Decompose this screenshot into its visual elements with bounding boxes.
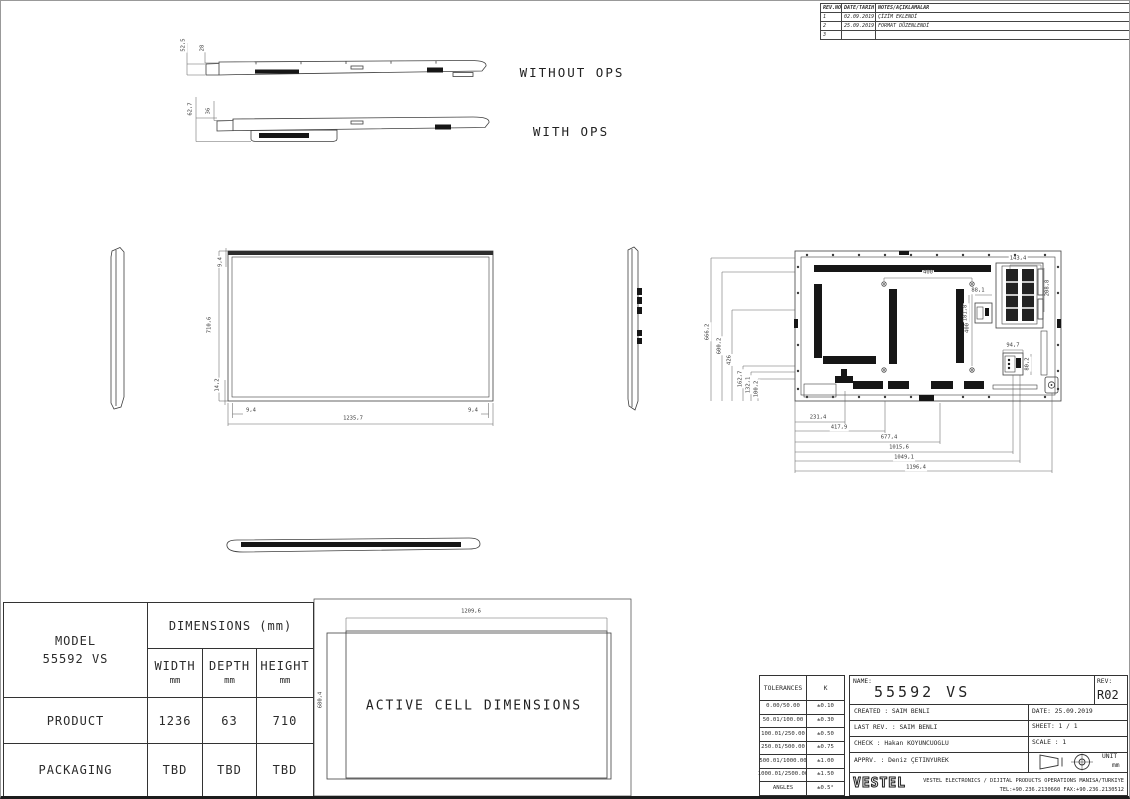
tol-range: 1000.01/2500.00: [760, 769, 806, 782]
col-height: HEIGHT mm: [257, 649, 313, 697]
dim-back-bottom-4: 1049,1: [893, 455, 915, 461]
sheet-value: SHEET: 1 / 1: [1032, 724, 1078, 730]
dim-front-bottom-bezel: 14,2: [215, 377, 221, 392]
dim-front-left-bezel: 9,4: [245, 408, 257, 414]
tol-range: 0.00/50.00: [760, 701, 806, 714]
rev-row-no: 2: [821, 22, 841, 30]
rev-value: R02: [1097, 688, 1119, 702]
col-depth-unit: mm: [224, 675, 235, 689]
date-value: DATE: 25.09.2019: [1032, 709, 1093, 715]
scale-value: SCALE : 1: [1032, 740, 1066, 746]
col-width: WIDTH mm: [148, 649, 202, 697]
active-cell-drawing: [314, 599, 631, 796]
rev-header-no: REV.NO: [821, 4, 841, 12]
dim-back-left-1: 600,2: [717, 337, 723, 356]
packaging-width: TBD: [148, 744, 202, 796]
model-value: 55592 VS: [43, 650, 109, 668]
packaging-depth: TBD: [203, 744, 256, 796]
vestel-logo: VESTEL: [853, 776, 906, 791]
created-by: CREATED : SAIM BENLI: [854, 709, 930, 715]
dim-front-top-bezel: 9,4: [218, 256, 224, 268]
tol-value: ±0.5°: [807, 782, 844, 795]
dim-connector-width: 94,7: [1005, 343, 1020, 349]
dim-front-right-bezel: 9,4: [467, 408, 479, 414]
approved-by: APPRV. : Deniz ÇETINYUREK: [854, 758, 949, 764]
drawing-name: 55592 VS: [874, 683, 970, 701]
dim-back-left-2: 426: [727, 354, 733, 366]
dim-connector-height: 80,2: [1025, 356, 1031, 371]
bottom-profile-view: [227, 538, 480, 552]
tol-header-range: TOLERANCES: [760, 676, 806, 700]
speaker-module: [975, 303, 992, 323]
unit-value: mm: [1112, 763, 1120, 769]
tol-value: ±0.30: [807, 715, 844, 728]
profile-view-without-ops: [187, 43, 486, 77]
tol-value: ±1.00: [807, 755, 844, 768]
tol-header-k: K: [807, 676, 844, 700]
dim-ops-width: 143,4: [1009, 256, 1028, 262]
dim-back-left-5: 100,2: [754, 380, 760, 399]
row-product-label: PRODUCT: [4, 698, 147, 743]
tol-range: 250.01/500.00: [760, 742, 806, 755]
dim-back-bottom-2: 677,4: [880, 435, 899, 441]
dim-with-ops-panel: 36: [206, 107, 212, 116]
rev-row-date: 02.09.2019: [842, 13, 875, 21]
rev-row-note: ÇİZİM EKLENDİ: [876, 13, 1130, 21]
packaging-height: TBD: [257, 744, 313, 796]
side-view-right: [628, 247, 642, 410]
side-view-left: [111, 248, 124, 410]
profile-view-with-ops: [196, 97, 489, 142]
company-line: VESTEL ELECTRONICS / DIJITAL PRODUCTS OP…: [923, 778, 1124, 784]
drawing-sheet: 52,5 28 WITHOUT OPS 62,7 36 WITH OPS 710…: [0, 0, 1130, 799]
dim-vesa-horizontal: 400: [922, 270, 934, 276]
ops-slot: [996, 263, 1043, 328]
rev-row-no: 3: [821, 31, 841, 39]
connector-panel: [1003, 353, 1023, 375]
dim-front-width: 1235,7: [342, 416, 364, 422]
projection-symbol-icon: [1036, 753, 1106, 771]
tol-range: 500.01/1000.00: [760, 755, 806, 768]
col-width-label: WIDTH: [154, 657, 195, 675]
dim-active-cell-height: 680,4: [318, 691, 324, 710]
dim-front-height: 710,6: [207, 316, 213, 335]
model-label: MODEL: [55, 632, 96, 650]
model-dimensions-table: MODEL 55592 VS DIMENSIONS (mm) WIDTH mm …: [3, 602, 314, 797]
tol-range: ANGLES: [760, 782, 806, 795]
dim-vesa-vertical: 400: [965, 322, 971, 334]
rev-row-note: FORMAT DÜZENLENDİ: [876, 22, 1130, 30]
dim-back-bottom-1: 417,9: [830, 425, 849, 431]
product-depth: 63: [203, 698, 256, 743]
label-without-ops: WITHOUT OPS: [520, 67, 625, 80]
rev-header-note: NOTES/AÇIKLAMALAR: [876, 4, 1130, 12]
dim-back-bottom-5: 1196,4: [905, 465, 927, 471]
rev-header-date: DATE/TARIH: [842, 4, 875, 12]
tol-value: ±0.75: [807, 742, 844, 755]
last-rev-by: LAST REV. : SAIM BENLI: [854, 725, 937, 731]
revision-table: REV.NO DATE/TARIH NOTES/AÇIKLAMALAR 1 02…: [820, 3, 1130, 40]
title-block: NAME: 55592 VS REV: R02 CREATED : SAIM B…: [849, 675, 1128, 796]
label-with-ops: WITH OPS: [533, 126, 609, 139]
product-height: 710: [257, 698, 313, 743]
dimensions-header: DIMENSIONS (mm): [148, 603, 313, 648]
rev-row-date: [842, 31, 875, 39]
dim-with-ops-total: 62,7: [188, 101, 194, 116]
dim-back-left-4: 132,1: [746, 376, 752, 395]
rev-row-no: 1: [821, 13, 841, 21]
dim-active-cell-width: 1209,6: [460, 609, 482, 615]
product-width: 1236: [148, 698, 202, 743]
model-cell: MODEL 55592 VS: [4, 603, 147, 697]
tol-range: 100.01/250.00: [760, 728, 806, 741]
rev-label: REV:: [1097, 679, 1112, 685]
dim-without-ops-panel: 28: [200, 44, 206, 53]
dim-back-bottom-3: 1015,6: [888, 445, 910, 451]
col-depth-label: DEPTH: [209, 657, 250, 675]
dim-without-ops-total: 52,5: [181, 37, 187, 52]
tol-range: 50.01/100.00: [760, 715, 806, 728]
dim-module-height: 181,8: [963, 304, 969, 323]
tolerance-table: TOLERANCES K 0.00/50.00 ±0.10 50.01/100.…: [759, 675, 845, 796]
front-view: [219, 248, 493, 426]
name-label: NAME:: [853, 679, 872, 685]
tol-value: ±0.10: [807, 701, 844, 714]
dim-back-bottom-0: 231,4: [809, 415, 828, 421]
col-height-unit: mm: [280, 675, 291, 689]
rev-row-date: 25.09.2019: [842, 22, 875, 30]
dim-ops-height: 208,8: [1045, 279, 1051, 298]
dim-module-width: 88,1: [970, 288, 985, 294]
col-width-unit: mm: [170, 675, 181, 689]
dim-back-left-3: 162,7: [738, 370, 744, 389]
ac-inlet: [1045, 377, 1058, 393]
row-packaging-label: PACKAGING: [4, 744, 147, 796]
vesa-holes: [882, 282, 974, 372]
active-cell-label: ACTIVE CELL DIMENSIONS: [366, 699, 582, 714]
tol-value: ±0.50: [807, 728, 844, 741]
dim-back-left-0: 666,2: [705, 323, 711, 342]
rev-row-note: [876, 31, 1130, 39]
col-height-label: HEIGHT: [260, 657, 309, 675]
unit-label: UNIT: [1102, 754, 1117, 760]
checked-by: CHECK : Hakan KOYUNCUOGLU: [854, 741, 949, 747]
contact-line: TEL:+90.236.2130660 FAX:+90.236.2130512: [1000, 787, 1124, 793]
col-depth: DEPTH mm: [203, 649, 256, 697]
tol-value: ±1.50: [807, 769, 844, 782]
